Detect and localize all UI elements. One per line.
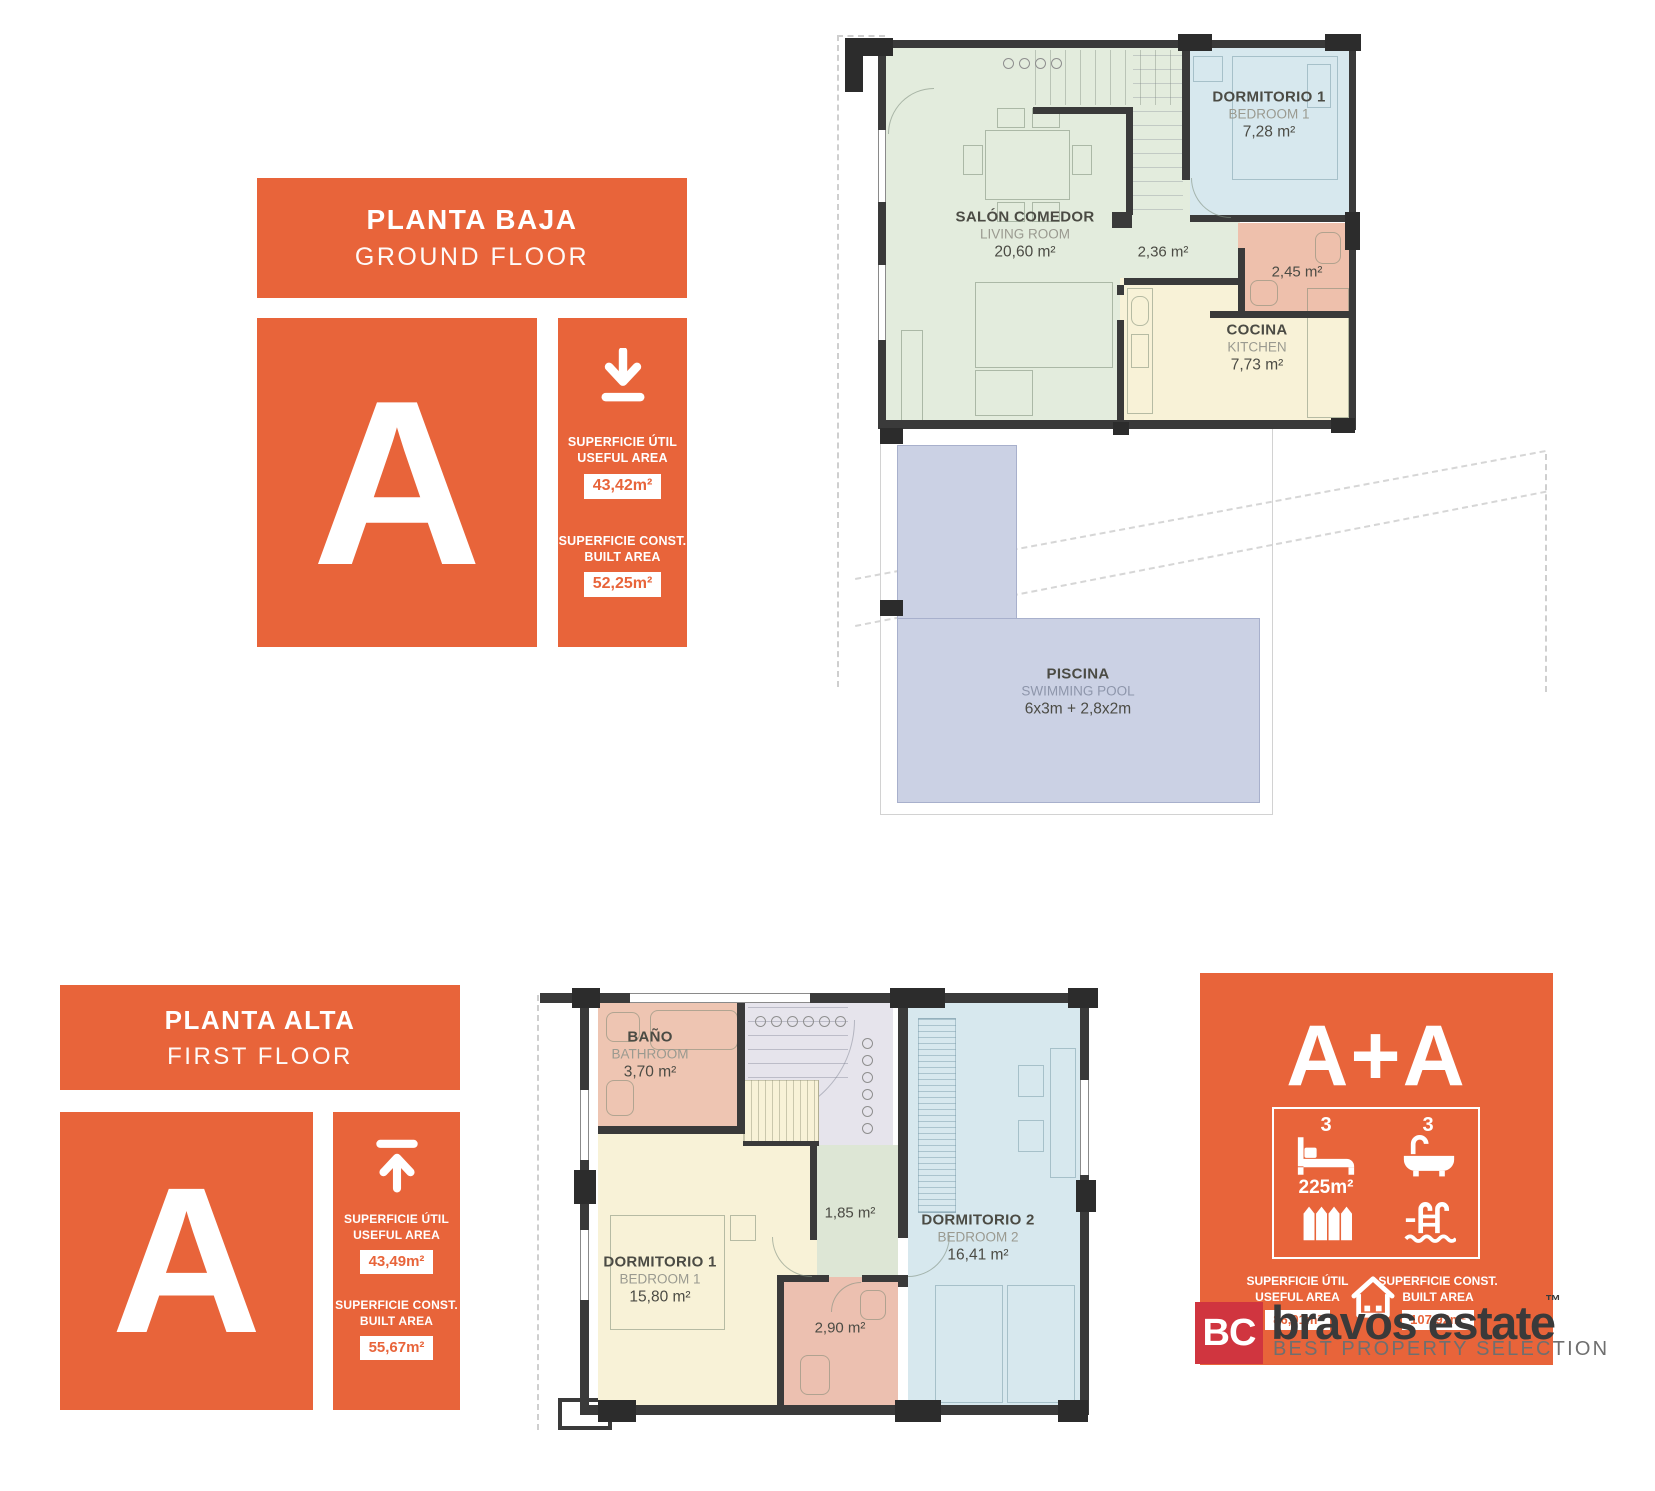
fence-icon [1302, 1199, 1352, 1247]
room-name-es: DORMITORIO 2 [921, 1212, 1034, 1229]
pool-dimensions: 6x3m + 2,8x2m [1021, 701, 1134, 719]
wall [737, 1003, 745, 1134]
bath-area-label: 2,45 m² [1272, 264, 1323, 281]
window [580, 1090, 589, 1160]
nightstand [1193, 56, 1223, 82]
nightstand [730, 1215, 756, 1241]
bedroom1-label: DORMITORIO 1 BEDROOM 1 15,80 m² [603, 1254, 716, 1307]
room-name-en: LIVING ROOM [956, 227, 1095, 242]
hall-area-label: 1,85 m² [825, 1205, 876, 1222]
window [630, 993, 810, 1003]
sink [1250, 280, 1278, 306]
stair-step-markers [755, 1016, 846, 1027]
combo-title: A+A [1200, 1007, 1553, 1106]
wall [1182, 48, 1190, 180]
wall [862, 1275, 898, 1282]
ground-floor-plan: SALÓN COMEDOR LIVING ROOM 20,60 m² 2,36 … [795, 30, 1560, 835]
built-area-label-es: SUPERFICIE CONST. [1378, 1273, 1497, 1289]
pillar [1345, 212, 1360, 250]
kitchen-stove [1131, 334, 1149, 368]
sofa [975, 282, 1113, 368]
wardrobe [918, 1018, 956, 1213]
pillar [1178, 34, 1212, 51]
ground-floor-header: PLANTA BAJA GROUND FLOOR [257, 178, 687, 298]
window [878, 265, 886, 340]
features-box: 3 3 225m² [1272, 1107, 1480, 1259]
built-area-value: 55,67m² [360, 1336, 434, 1360]
useful-area-label-en: USEFUL AREA [353, 1228, 440, 1244]
wall [898, 1275, 908, 1287]
wall [1117, 320, 1124, 420]
logo-trademark: ™ [1545, 1293, 1561, 1311]
first-floor-header: PLANTA ALTA FIRST FLOOR [60, 985, 460, 1090]
room-name-en: SWIMMING POOL [1021, 684, 1134, 699]
built-area-label-es: SUPERFICIE CONST. [335, 1298, 458, 1314]
chair [1072, 145, 1092, 175]
plot-boundary-dashed [837, 35, 885, 37]
room-name-es: DORMITORIO 1 [1212, 89, 1325, 106]
tv-unit [901, 330, 923, 422]
stair-step-markers [1003, 58, 1062, 69]
pillar [1076, 1180, 1096, 1212]
room-name-en: BATHROOM [612, 1047, 689, 1062]
dining-table [985, 130, 1070, 200]
useful-area-value: 43,49m² [360, 1250, 434, 1274]
kitchen-sink [1131, 296, 1149, 326]
first-floor-info-block: SUPERFICIE ÚTIL USEFUL AREA 43,49m² SUPE… [333, 1112, 460, 1410]
stair-wall [1126, 107, 1133, 215]
useful-area-label-es: SUPERFICIE ÚTIL [344, 1212, 449, 1228]
bedroom2-label: DORMITORIO 2 BEDROOM 2 16,41 m² [921, 1212, 1034, 1265]
pillar [1113, 422, 1129, 435]
stair-wall [1033, 107, 1133, 114]
wall [540, 993, 1088, 1003]
sofa-chaise [975, 370, 1033, 416]
pillar [1068, 988, 1098, 1008]
bathroom-label: BAÑO BATHROOM 3,70 m² [612, 1029, 689, 1082]
room-name-en: BEDROOM 1 [1212, 107, 1325, 122]
ground-floor-unit-letter: A [257, 318, 537, 647]
wall [1238, 248, 1245, 315]
pillar [1331, 418, 1355, 433]
room-name-es: BAÑO [612, 1029, 689, 1046]
useful-area-label-en: USEFUL AREA [577, 450, 667, 466]
toilet [800, 1355, 830, 1395]
ground-floor-title-es: PLANTA BAJA [367, 204, 578, 236]
bed [935, 1285, 1003, 1403]
room-area: 7,28 m² [1212, 124, 1325, 142]
living-room-label: SALÓN COMEDOR LIVING ROOM 20,60 m² [956, 209, 1095, 262]
bath-icon [1402, 1133, 1456, 1177]
plot-area-value: 225m² [1274, 1177, 1378, 1199]
pool-label: PISCINA SWIMMING POOL 6x3m + 2,8x2m [1021, 666, 1134, 719]
window [580, 1230, 589, 1300]
bed [1007, 1285, 1075, 1403]
pillar [880, 428, 903, 444]
wall [898, 1003, 908, 1238]
wall [777, 1275, 784, 1405]
first-floor-title-es: PLANTA ALTA [165, 1005, 356, 1036]
room-name-es: DORMITORIO 1 [603, 1254, 716, 1271]
wall [810, 1145, 817, 1240]
logo-initials: BC [1203, 1312, 1256, 1355]
pillar [1058, 1400, 1088, 1422]
first-floor-plan: BAÑO BATHROOM 3,70 m² DORMITORIO 1 BEDRO… [510, 930, 1110, 1475]
built-area-label-en: BUILT AREA [584, 549, 660, 565]
built-area-label-en: BUILT AREA [360, 1314, 433, 1330]
built-area-label-es: SUPERFICIE CONST. [559, 533, 687, 549]
toilet [606, 1080, 634, 1116]
room-name-es: COCINA [1227, 322, 1288, 339]
window [1080, 1080, 1089, 1175]
upload-icon [370, 1136, 424, 1194]
room-name-es: PISCINA [1021, 666, 1134, 683]
brand-logo: BC bravos estate ™ BEST PROPERTY SELECTI… [1195, 1295, 1595, 1375]
first-floor-unit-letter: A [60, 1112, 313, 1410]
chair [963, 145, 983, 175]
wall [1117, 285, 1124, 295]
useful-area-value: 43,42m² [584, 474, 662, 499]
wall [1124, 278, 1240, 285]
bedroom1-label: DORMITORIO 1 BEDROOM 1 7,28 m² [1212, 89, 1325, 142]
first-floor-title-en: FIRST FLOOR [167, 1043, 353, 1071]
unit-letter-a: A [111, 1142, 261, 1381]
toilet [1315, 232, 1341, 264]
useful-area-label-es: SUPERFICIE ÚTIL [1246, 1273, 1348, 1289]
pillar [572, 988, 600, 1008]
unit-letter-a: A [312, 347, 482, 618]
desk [1050, 1048, 1076, 1178]
room-name-en: BEDROOM 2 [921, 1230, 1034, 1245]
wall [878, 40, 886, 428]
plot-boundary-dashed [537, 995, 539, 1430]
stairs-treads [1133, 50, 1183, 210]
chair [1018, 1065, 1044, 1097]
room-name-en: KITCHEN [1227, 340, 1288, 355]
wall [598, 1126, 745, 1134]
bed-icon [1296, 1135, 1356, 1177]
pillar [1325, 34, 1361, 51]
wall [1190, 215, 1349, 222]
wall [580, 1405, 1089, 1415]
wall [1210, 311, 1349, 318]
pillar [890, 988, 945, 1008]
room-area: 7,73 m² [1227, 357, 1288, 375]
wall [743, 1141, 819, 1146]
plot-boundary-dashed [1545, 454, 1547, 692]
ground-floor-info-block: SUPERFICIE ÚTIL USEFUL AREA 43,42m² SUPE… [558, 318, 687, 647]
pillar [598, 1400, 636, 1422]
room-area: 3,70 m² [612, 1064, 689, 1082]
kitchen-label: COCINA KITCHEN 7,73 m² [1227, 322, 1288, 375]
pillar [574, 1170, 596, 1204]
wardrobe [743, 1080, 819, 1143]
room-name-es: SALÓN COMEDOR [956, 209, 1095, 226]
stair-wall [1112, 212, 1132, 228]
sink [860, 1290, 886, 1320]
window [878, 130, 886, 202]
wall [580, 993, 589, 1415]
logo-mark: BC [1195, 1302, 1263, 1364]
room-area: 16,41 m² [921, 1247, 1034, 1265]
chair [997, 108, 1025, 128]
bedrooms-count: 3 [1274, 1114, 1378, 1137]
room-name-en: BEDROOM 1 [603, 1272, 716, 1287]
room-area: 20,60 m² [956, 244, 1095, 262]
wc-area-label: 2,90 m² [815, 1320, 866, 1337]
chair [1018, 1120, 1044, 1152]
ground-floor-title-en: GROUND FLOOR [355, 243, 589, 272]
pool-icon [1404, 1197, 1456, 1247]
pillar [880, 600, 903, 616]
stair-step-markers [862, 1038, 873, 1134]
pillar [895, 1400, 941, 1422]
room-area: 15,80 m² [603, 1289, 716, 1307]
download-icon [595, 348, 651, 408]
kitchen-counter [1307, 288, 1349, 418]
logo-tagline: BEST PROPERTY SELECTION [1273, 1338, 1609, 1361]
pillar [845, 38, 893, 56]
plot-boundary-dashed [837, 35, 839, 687]
useful-area-label-es: SUPERFICIE ÚTIL [568, 434, 677, 450]
hall-area-label: 2,36 m² [1138, 244, 1189, 261]
built-area-value: 52,25m² [584, 572, 662, 597]
wall [845, 40, 1355, 48]
